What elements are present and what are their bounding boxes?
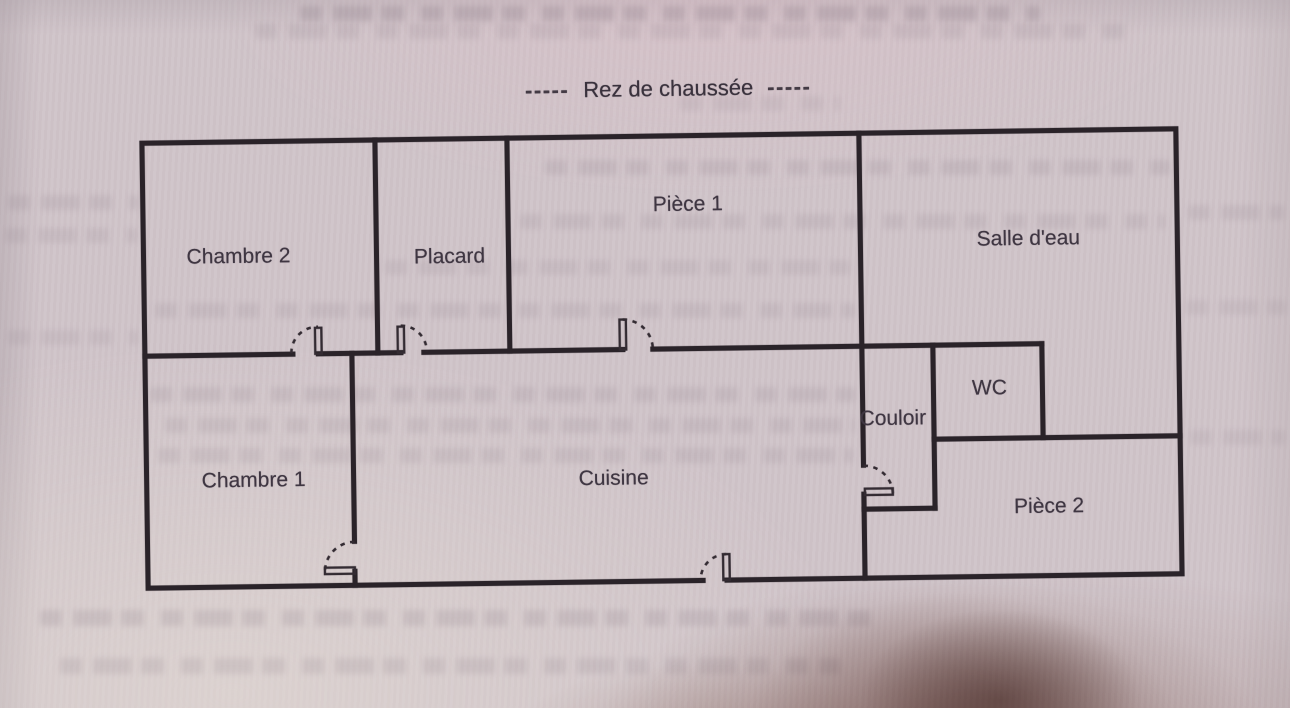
floor-plan: -----Rez de chaussée----- <box>0 0 1290 708</box>
room-label-cuisine: Cuisine <box>578 466 648 491</box>
door-chambre-1 <box>325 542 355 574</box>
door-leaf <box>723 554 730 580</box>
room-label-piece-2: Pièce 2 <box>1014 494 1084 519</box>
door-piece-1 <box>619 319 652 349</box>
room-label-piece-1: Pièce 1 <box>653 192 723 217</box>
door-leaf <box>865 488 893 495</box>
room-label-couloir: Couloir <box>859 406 926 431</box>
door-leaf <box>398 327 405 353</box>
room-label-placard: Placard <box>414 244 486 269</box>
room-label-chambre-2: Chambre 2 <box>186 244 290 269</box>
door-leaf <box>315 328 322 354</box>
door-chambre-2 <box>291 327 322 354</box>
door-placard <box>397 325 426 352</box>
room-label-chambre-1: Chambre 1 <box>202 468 306 493</box>
room-label-salle-d-eau: Salle d'eau <box>977 226 1081 251</box>
floor-plan-drawing <box>0 0 1290 708</box>
scanned-floor-plan-photo: -----Rez de chaussée----- <box>0 0 1290 708</box>
door-leaf <box>619 320 626 350</box>
door-leaf <box>325 567 355 574</box>
door-entrance <box>700 554 730 580</box>
doors <box>291 316 894 586</box>
door-couloir <box>863 465 892 495</box>
door-swing-arc <box>863 465 892 494</box>
room-label-wc: WC <box>972 376 1007 400</box>
